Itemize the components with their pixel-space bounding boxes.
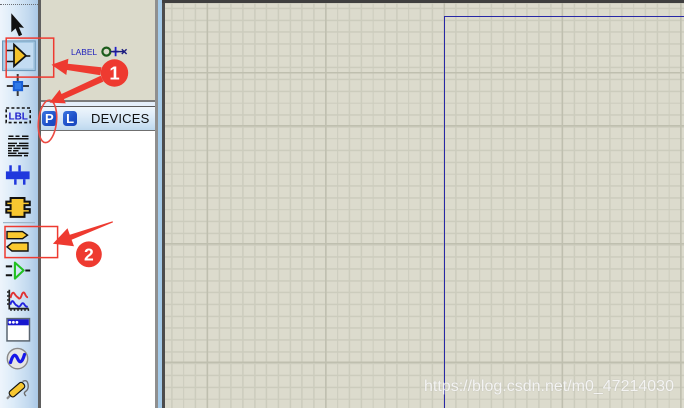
svg-text:1: 1 — [109, 63, 119, 84]
svg-text:2: 2 — [84, 245, 94, 265]
